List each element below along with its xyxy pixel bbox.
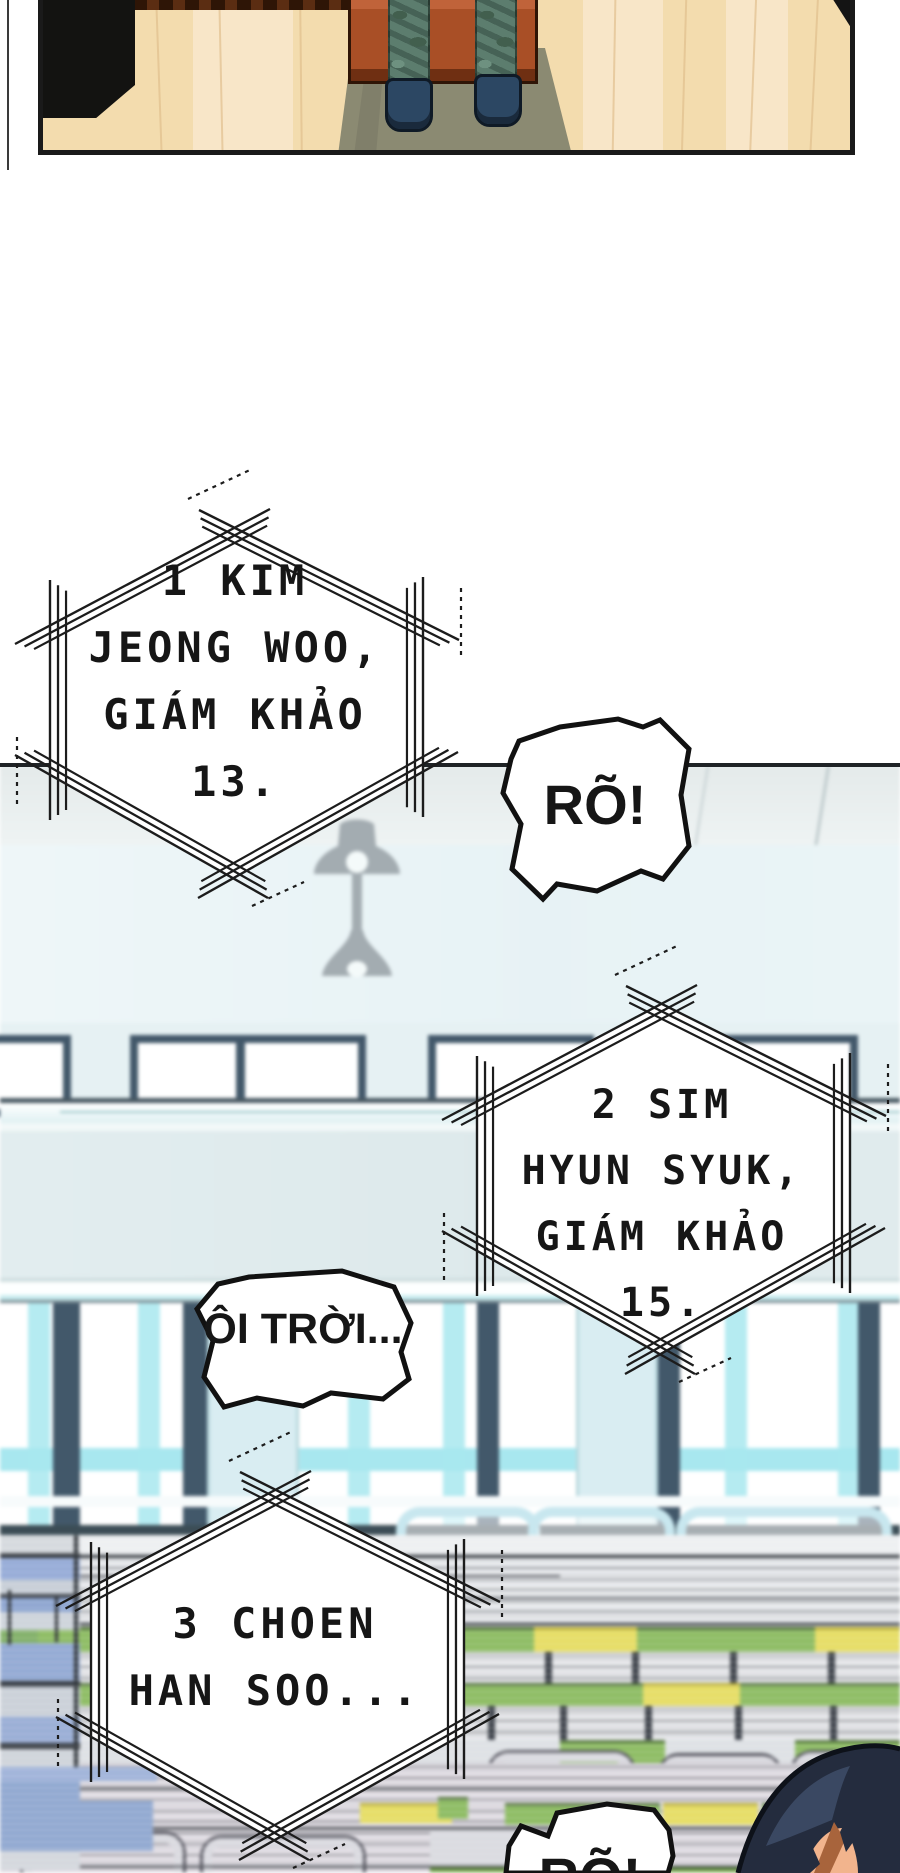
page-edge-line	[7, 0, 9, 170]
floor-highlight	[583, 0, 663, 155]
window-ledge	[0, 1496, 900, 1507]
floor-highlight	[726, 0, 788, 155]
dark-corner-right	[798, 0, 855, 34]
judge2-line: 15.	[482, 1270, 842, 1336]
floor-plank-line	[155, 0, 163, 155]
panel-border-right	[850, 0, 855, 155]
judge2-line: GIÁM KHẢO	[482, 1204, 842, 1270]
top-panel	[38, 0, 855, 155]
lamp-hole	[347, 961, 367, 977]
judge1-line: 1 KIM	[55, 547, 415, 614]
ceiling-lamp-icon	[312, 818, 402, 998]
judge1-text: 1 KIM JEONG WOO, GIÁM KHẢO 13.	[55, 547, 415, 815]
judge3-line: HAN SOO...	[90, 1657, 460, 1724]
person-left-leg	[388, 0, 430, 82]
ceiling-streak	[690, 765, 712, 845]
lamp-hole	[346, 851, 368, 873]
person-right-leg	[475, 0, 517, 78]
floor-plank-line	[809, 0, 819, 155]
judge2-line: HYUN SYUK,	[482, 1138, 842, 1204]
judge2-text: 2 SIM HYUN SYUK, GIÁM KHẢO 15.	[482, 1072, 842, 1336]
judge2-line: 2 SIM	[482, 1072, 842, 1138]
comic-page: 1 KIM JEONG WOO, GIÁM KHẢO 13. RÕ! 2 SIM…	[0, 0, 900, 1873]
reply2-text: RÕ!	[500, 1845, 680, 1873]
floor-plank-line	[681, 0, 688, 155]
far-table-edge	[133, 0, 351, 10]
person-left-shoe	[385, 78, 433, 132]
judge3-text: 3 CHOEN HAN SOO...	[90, 1590, 460, 1724]
judge1-line: JEONG WOO,	[55, 614, 415, 681]
reply1-text: RÕ!	[500, 772, 690, 837]
floor-highlight	[193, 0, 293, 155]
judge3-line: 3 CHOEN	[90, 1590, 460, 1657]
judge1-line: 13.	[55, 748, 415, 815]
upper-wall	[0, 845, 900, 1023]
floor-plank-line	[299, 0, 303, 155]
judge1-line: GIÁM KHẢO	[55, 681, 415, 748]
ceiling-streak	[810, 765, 833, 845]
panel-border-left	[38, 0, 43, 155]
dark-object-left	[38, 0, 135, 118]
reaction1-text: ÔI TRỜI...	[198, 1305, 408, 1354]
panel-border-bottom	[38, 150, 855, 155]
person-right-shoe	[474, 74, 522, 127]
lamp-stem	[352, 874, 362, 932]
